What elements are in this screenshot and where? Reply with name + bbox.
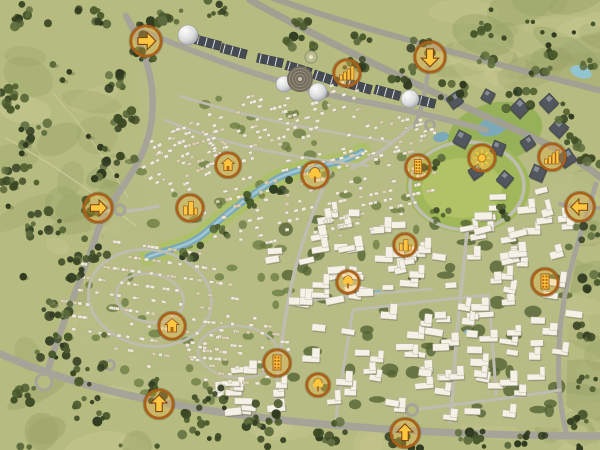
- villa: [114, 347, 119, 350]
- villa: [235, 366, 239, 369]
- villa: [285, 228, 289, 231]
- villa: [277, 221, 281, 225]
- villa: [208, 307, 212, 311]
- villa: [209, 280, 214, 283]
- villa: [209, 334, 214, 337]
- villa: [342, 216, 346, 220]
- villa: [190, 341, 195, 344]
- villa: [221, 216, 226, 220]
- villa: [189, 356, 193, 359]
- villa: [208, 357, 212, 360]
- villa: [151, 245, 156, 248]
- villa: [192, 318, 196, 322]
- villa: [217, 357, 221, 361]
- villa: [432, 131, 436, 135]
- villa: [267, 325, 272, 329]
- villa: [247, 219, 252, 223]
- villa: [85, 303, 89, 307]
- villa: [260, 346, 264, 349]
- entrance-marker-northwest[interactable]: [129, 24, 163, 58]
- villa: [211, 364, 215, 367]
- villa: [182, 126, 187, 130]
- apartment-block: [355, 349, 371, 357]
- villa: [154, 339, 159, 343]
- villa: [124, 308, 128, 312]
- apartment-block: [234, 398, 253, 406]
- apartment-block: [348, 209, 360, 218]
- villa: [178, 302, 182, 306]
- villa: [331, 227, 335, 231]
- villa: [95, 291, 99, 294]
- villa: [383, 198, 387, 202]
- villa: [192, 356, 196, 360]
- villa: [394, 145, 399, 149]
- apartment-block: [445, 282, 458, 290]
- villa: [231, 296, 235, 300]
- villa: [374, 192, 378, 195]
- villa: [288, 219, 293, 223]
- entrance-marker-north[interactable]: [413, 40, 447, 74]
- villa: [196, 291, 200, 295]
- villa: [126, 335, 130, 339]
- villa: [219, 329, 224, 333]
- villa: [339, 199, 344, 203]
- villa: [133, 283, 137, 286]
- villa: [238, 351, 243, 355]
- villa: [117, 294, 122, 298]
- tower-icon: [414, 160, 421, 174]
- clubhouse-marker-southwest[interactable]: [157, 311, 187, 341]
- villa: [234, 187, 238, 191]
- villa: [195, 331, 199, 335]
- villa: [130, 349, 134, 352]
- villa: [387, 164, 391, 167]
- villa: [165, 354, 170, 358]
- villa: [207, 112, 212, 116]
- villa: [361, 203, 366, 206]
- villa: [147, 325, 151, 328]
- villa: [276, 333, 280, 336]
- villa: [228, 380, 232, 384]
- villa: [336, 191, 340, 195]
- villa: [285, 122, 289, 126]
- villa: [150, 285, 155, 289]
- villa: [273, 179, 277, 183]
- villa: [98, 278, 102, 281]
- villa: [222, 336, 227, 339]
- villa: [423, 130, 427, 133]
- villa: [235, 297, 239, 301]
- apartment-block: [489, 194, 507, 201]
- villa: [216, 336, 220, 339]
- villa: [236, 129, 241, 133]
- villa: [389, 206, 394, 209]
- villa: [337, 165, 342, 169]
- villa: [60, 299, 64, 302]
- villa: [239, 229, 243, 233]
- apartment-block: [530, 340, 544, 348]
- villa: [152, 259, 156, 263]
- villa: [166, 287, 170, 290]
- tower-marker-central[interactable]: [404, 153, 432, 181]
- villa: [110, 293, 114, 296]
- villa: [253, 316, 257, 320]
- villa: [418, 118, 423, 122]
- masterplan-map: [0, 0, 600, 450]
- villa: [287, 115, 292, 119]
- villa: [112, 267, 117, 271]
- villa: [216, 200, 220, 203]
- villa: [413, 201, 417, 205]
- villa: [295, 217, 299, 220]
- villa: [214, 129, 219, 133]
- villa: [226, 315, 229, 318]
- villa: [419, 139, 423, 143]
- villa: [166, 274, 170, 277]
- villa: [343, 224, 347, 228]
- villa: [168, 248, 172, 251]
- villa: [178, 263, 182, 266]
- villa: [345, 164, 350, 168]
- villa: [202, 356, 206, 359]
- villa: [147, 365, 152, 369]
- villa: [310, 206, 314, 210]
- villa: [219, 321, 223, 324]
- apartment-block: [357, 288, 375, 297]
- villa: [228, 373, 232, 376]
- villa: [333, 209, 337, 213]
- apartment-block: [382, 285, 394, 291]
- apartment-block: [396, 344, 415, 352]
- park-marker-central[interactable]: [300, 160, 330, 190]
- park-marker-south[interactable]: [305, 372, 331, 398]
- villa: [140, 337, 144, 341]
- tower-marker-east[interactable]: [530, 267, 560, 297]
- villa: [222, 350, 227, 354]
- villa: [286, 348, 290, 351]
- villa: [261, 331, 265, 335]
- villa: [231, 322, 235, 326]
- apartment-block: [467, 346, 483, 355]
- villa: [134, 256, 138, 259]
- villa: [405, 117, 410, 121]
- tower-icon: [541, 274, 549, 289]
- villa: [78, 289, 82, 292]
- villa: [237, 204, 241, 208]
- villa: [218, 281, 223, 285]
- villa: [151, 299, 156, 303]
- villa: [286, 159, 291, 162]
- villa: [120, 281, 124, 285]
- villa: [286, 128, 290, 132]
- villa: [116, 240, 121, 244]
- villa: [407, 202, 412, 206]
- villa: [252, 100, 256, 104]
- villa: [208, 294, 213, 297]
- villa: [280, 340, 285, 343]
- villa: [233, 344, 237, 347]
- villa: [173, 249, 177, 252]
- villa: [142, 244, 146, 247]
- apartment-block: [224, 407, 242, 417]
- villa: [175, 288, 180, 292]
- villa: [374, 157, 379, 161]
- villa: [152, 352, 156, 356]
- villa: [241, 177, 245, 180]
- villa: [398, 140, 403, 144]
- villa: [156, 259, 161, 263]
- apartment-block: [391, 221, 406, 229]
- apartment-block: [464, 408, 481, 416]
- villa: [382, 190, 387, 194]
- villa: [127, 282, 131, 286]
- villa: [330, 219, 335, 222]
- villa: [117, 334, 121, 338]
- villa: [246, 330, 250, 334]
- villa: [373, 201, 377, 204]
- villa: [149, 272, 153, 275]
- villa: [159, 353, 163, 357]
- villa: [144, 257, 149, 261]
- villa: [223, 358, 227, 361]
- villa: [283, 104, 287, 107]
- villa: [255, 382, 260, 385]
- central-park-marker[interactable]: [467, 143, 497, 173]
- villa: [185, 343, 189, 347]
- entrance-marker-east[interactable]: [564, 191, 596, 223]
- villa: [125, 268, 129, 271]
- villa: [352, 96, 356, 100]
- villa: [162, 287, 166, 290]
- villa: [249, 144, 253, 148]
- villa: [195, 265, 200, 269]
- villa: [201, 266, 206, 270]
- villa: [399, 204, 403, 208]
- villa: [173, 275, 177, 279]
- villa: [389, 198, 393, 201]
- villa: [238, 345, 242, 348]
- villa: [355, 222, 360, 225]
- villa: [145, 285, 150, 288]
- villa: [235, 330, 239, 333]
- villa: [255, 209, 260, 213]
- villa: [128, 309, 133, 313]
- villa: [203, 342, 207, 345]
- villa: [239, 238, 243, 241]
- villa: [72, 328, 76, 331]
- villa: [283, 109, 288, 113]
- villa: [78, 315, 83, 318]
- villa: [230, 387, 234, 391]
- tower-icon: [273, 355, 281, 370]
- villa: [203, 320, 208, 323]
- tower-marker-south[interactable]: [262, 348, 292, 378]
- villa: [313, 230, 318, 234]
- villa: [198, 345, 202, 348]
- villa: [327, 103, 331, 107]
- villa: [187, 348, 191, 351]
- villa: [259, 234, 263, 237]
- apartment-block: [474, 212, 493, 221]
- villa: [258, 360, 262, 363]
- villa: [183, 277, 187, 280]
- villa: [318, 152, 322, 155]
- villa: [86, 276, 90, 280]
- entrance-marker-southwest[interactable]: [143, 388, 175, 420]
- villa: [363, 177, 367, 181]
- villa: [264, 324, 268, 328]
- entrance-marker-west[interactable]: [82, 192, 114, 224]
- villa: [197, 278, 201, 282]
- sun-icon: [474, 150, 490, 166]
- apartment-block: [531, 317, 546, 325]
- apartment-block: [312, 324, 327, 334]
- villa: [277, 142, 282, 146]
- villa: [205, 349, 209, 353]
- villa: [419, 122, 423, 126]
- villa: [249, 324, 253, 327]
- clubhouse-marker-north[interactable]: [214, 151, 242, 179]
- villa: [416, 191, 421, 195]
- villa: [137, 270, 141, 274]
- villa: [150, 339, 154, 342]
- villa: [82, 316, 86, 320]
- villa: [285, 341, 290, 344]
- villa: [211, 321, 216, 324]
- villa: [426, 189, 431, 193]
- villa: [176, 159, 180, 163]
- villa: [196, 141, 200, 144]
- villa: [132, 296, 137, 299]
- business-district-marker-east[interactable]: [537, 142, 567, 172]
- villa: [219, 350, 222, 353]
- villa: [146, 311, 150, 315]
- masterplan-canvas: [0, 0, 600, 450]
- villa: [242, 381, 246, 384]
- villa: [115, 307, 119, 310]
- business-district-marker-north[interactable]: [332, 58, 362, 88]
- villa: [432, 171, 437, 174]
- villa: [189, 278, 193, 281]
- apartment-block: [466, 330, 479, 339]
- park-marker-center-south[interactable]: [335, 269, 361, 295]
- villa: [349, 180, 354, 184]
- villa: [128, 255, 132, 258]
- villa: [130, 269, 135, 272]
- villa: [158, 273, 162, 276]
- villa: [236, 195, 241, 199]
- villa: [215, 348, 220, 351]
- villa: [78, 302, 82, 305]
- villa: [218, 372, 222, 375]
- apartment-block: [267, 247, 283, 255]
- village-center-marker-central[interactable]: [392, 232, 418, 258]
- villa: [204, 378, 208, 381]
- villa: [88, 330, 92, 333]
- villa: [168, 137, 172, 140]
- villa: [103, 266, 107, 269]
- entrance-marker-south[interactable]: [389, 417, 421, 449]
- amphitheater: [287, 66, 313, 92]
- apartment-block: [435, 311, 448, 320]
- apartment-block: [433, 343, 451, 352]
- villa: [298, 200, 302, 203]
- villa: [228, 283, 233, 287]
- village-center-marker-west[interactable]: [175, 193, 205, 223]
- villa: [359, 186, 363, 190]
